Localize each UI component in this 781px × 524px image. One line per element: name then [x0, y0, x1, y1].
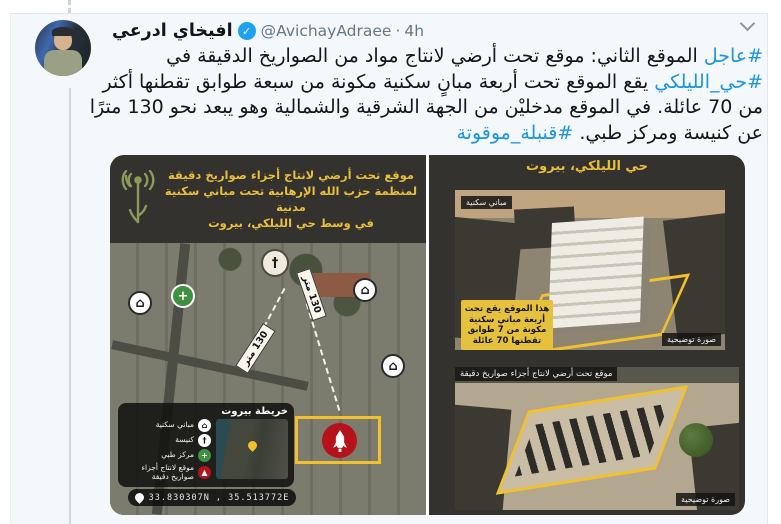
callout-line1: هذا الموقع يقع تحت [464, 304, 550, 315]
church-icon: † [198, 434, 211, 447]
map-title-line1: موقع تحت أرضي لانتاج أجزاء صواريخ دقيقة [164, 167, 418, 183]
distance-dashed-line [306, 303, 341, 411]
legend-label: موقع لانتاج أجزاء صواريخ دقيقة [124, 464, 194, 481]
mini-map-pin-icon [246, 439, 259, 452]
handle[interactable]: @AvichayAdraee [261, 22, 392, 40]
verified-badge-icon: ✓ [238, 22, 256, 40]
tweet-header: افيخاي ادرعي ✓ @AvichayAdraee · 4h [112, 21, 424, 41]
legend-list: ⌂ مباني سكنية † كنيسة + مركز طبي [124, 419, 211, 481]
hashtag-neighborhood[interactable]: #حي_الليلكي [654, 71, 763, 93]
render-label: موقع تحت أرضي لانتاج أجزاء صواريخ دقيقة [455, 367, 617, 381]
rocket-site-icon: ▲ [198, 466, 211, 479]
timestamp[interactable]: 4h [404, 22, 424, 40]
render-caption: صورة توضيحية [676, 493, 735, 506]
hashtag-urgent[interactable]: #عاجل [704, 45, 763, 67]
avatar-body-shape [44, 50, 82, 76]
tree-shape [679, 423, 713, 457]
highlighted-building [548, 217, 643, 329]
house-icon: ⌂ [198, 419, 211, 432]
legend-title: خريطة بيروت [124, 406, 288, 417]
legend-row-residential: ⌂ مباني سكنية [124, 419, 211, 432]
render-label: مباني سكنية [461, 196, 512, 209]
map-title-line3: في وسط حي الليلكي، بيروت [164, 215, 418, 231]
legend-label: كنيسة [175, 436, 194, 445]
media-card: موقع تحت أرضي لانتاج أجزاء صواريخ دقيقة … [110, 155, 745, 515]
legend-row-rocket-site: ▲ موقع لانتاج أجزاء صواريخ دقيقة [124, 464, 211, 481]
handle-group[interactable]: @AvichayAdraee · 4h [261, 22, 424, 40]
coordinates-text: 33.830307N , 35.513772E [149, 493, 290, 503]
display-name[interactable]: افيخاي ادرعي [112, 21, 233, 41]
residential-pin-icon: ⌂ [381, 354, 405, 378]
media-left-map-image[interactable]: موقع تحت أرضي لانتاج أجزاء صواريخ دقيقة … [110, 155, 426, 515]
target-site-outline [295, 416, 381, 464]
legend-row-medical: + مركز طبي [124, 449, 211, 462]
underground-site-outline [496, 385, 688, 494]
map-road [111, 340, 309, 390]
tweet-text-part1: الموقع الثاني: موقع تحت أرضي لانتاج مواد… [166, 45, 704, 67]
callout-line4: تقطنها 70 عائلة [464, 336, 550, 347]
mini-map [216, 419, 288, 479]
map-title-block: موقع تحت أرضي لانتاج أجزاء صواريخ دقيقة … [164, 167, 418, 231]
residential-pin-icon: ⌂ [128, 291, 152, 315]
hashtag-timebomb[interactable]: #قنبلة_موقوتة [456, 122, 573, 144]
twitter-page: افيخاي ادرعي ✓ @AvichayAdraee · 4h #عاجل… [0, 0, 781, 524]
machinery-texture [515, 403, 669, 476]
callout-box: هذا الموقع يقع تحت أربعة مباني سكنية مكو… [461, 300, 553, 350]
distance-label: 130 متر [235, 323, 275, 374]
rocket-site-marker-icon [322, 423, 357, 458]
thread-line-bottom [69, 88, 71, 524]
avatar[interactable] [35, 20, 91, 76]
avatar-hair-shape [52, 27, 74, 36]
map-header: موقع تحت أرضي لانتاج أجزاء صواريخ دقيقة … [110, 155, 426, 243]
legend-label: مباني سكنية [156, 421, 194, 430]
residential-pin-icon: ⌂ [353, 278, 377, 302]
callout-line2: أربعة مباني سكنية [464, 315, 550, 326]
thread-line-top [68, 0, 71, 13]
coordinates-pill: 33.830307N , 35.513772E [128, 489, 296, 506]
legend-row-church: † كنيسة [124, 434, 211, 447]
render-caption: صورة توضيحية [662, 333, 721, 346]
upper-render: مباني سكنية هذا الموقع يقع تحت أربعة مبا… [455, 190, 725, 350]
map-title-line2: لمنظمة حزب الله الإرهابية تحت مباني سكني… [164, 183, 418, 215]
chevron-down-icon[interactable] [740, 16, 754, 30]
callout-line3: مكونة من 7 طوابق [464, 325, 550, 336]
render-title: حي الليلكي، بيروت [429, 159, 745, 174]
media-right-render-image[interactable]: حي الليلكي، بيروت مباني سكنية هذا الموقع… [429, 155, 745, 515]
legend-label: مركز طبي [161, 451, 194, 460]
location-pin-icon [133, 491, 146, 504]
missile-icon [333, 430, 347, 452]
medical-cross-icon: + [198, 449, 211, 462]
separator-dot: · [395, 22, 400, 40]
map-legend-inset: خريطة بيروت ⌂ مباني سكنية † [118, 403, 294, 487]
medical-pin-icon: + [171, 284, 195, 308]
antenna-icon [118, 170, 158, 228]
satellite-map: ⌂ ⌂ ⌂ + † 130 متر 130 متر [110, 243, 426, 515]
tweet-text: #عاجل الموقع الثاني: موقع تحت أرضي لانتا… [85, 44, 763, 146]
lower-render: موقع تحت أرضي لانتاج أجزاء صواريخ دقيقة … [455, 367, 739, 510]
church-pin-icon: † [261, 249, 289, 277]
render-building-block [455, 405, 511, 510]
